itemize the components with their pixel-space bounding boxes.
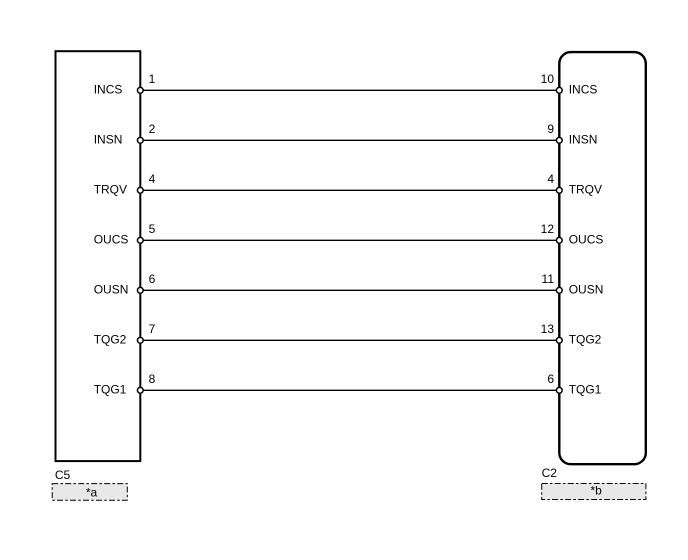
svg-text:5: 5 xyxy=(149,222,156,236)
svg-text:9: 9 xyxy=(547,122,554,136)
svg-text:TQG2: TQG2 xyxy=(569,332,602,346)
svg-text:OUCS: OUCS xyxy=(94,232,129,246)
svg-text:8: 8 xyxy=(149,372,156,386)
svg-text:OUSN: OUSN xyxy=(569,282,604,296)
svg-text:6: 6 xyxy=(547,372,554,386)
svg-text:2: 2 xyxy=(149,122,156,136)
svg-text:6: 6 xyxy=(149,272,156,286)
svg-text:C5: C5 xyxy=(55,468,71,482)
svg-text:INCS: INCS xyxy=(569,82,598,96)
svg-text:TRQV: TRQV xyxy=(94,182,127,196)
svg-text:*a: *a xyxy=(86,486,98,500)
svg-text:INCS: INCS xyxy=(94,82,123,96)
svg-text:*b: *b xyxy=(591,483,603,497)
svg-text:4: 4 xyxy=(547,172,554,186)
svg-text:INSN: INSN xyxy=(94,132,123,146)
svg-text:TQG1: TQG1 xyxy=(569,382,602,396)
svg-text:11: 11 xyxy=(542,272,555,286)
svg-text:4: 4 xyxy=(149,172,156,186)
svg-text:OUCS: OUCS xyxy=(569,232,604,246)
svg-text:TQG2: TQG2 xyxy=(94,332,127,346)
svg-text:13: 13 xyxy=(541,322,555,336)
svg-text:10: 10 xyxy=(541,72,555,86)
svg-text:OUSN: OUSN xyxy=(94,282,129,296)
svg-text:1: 1 xyxy=(149,72,156,86)
svg-text:TQG1: TQG1 xyxy=(94,382,127,396)
svg-text:12: 12 xyxy=(541,222,555,236)
svg-text:C2: C2 xyxy=(542,466,558,480)
svg-text:7: 7 xyxy=(149,322,156,336)
svg-text:TRQV: TRQV xyxy=(569,182,602,196)
svg-text:INSN: INSN xyxy=(569,132,598,146)
